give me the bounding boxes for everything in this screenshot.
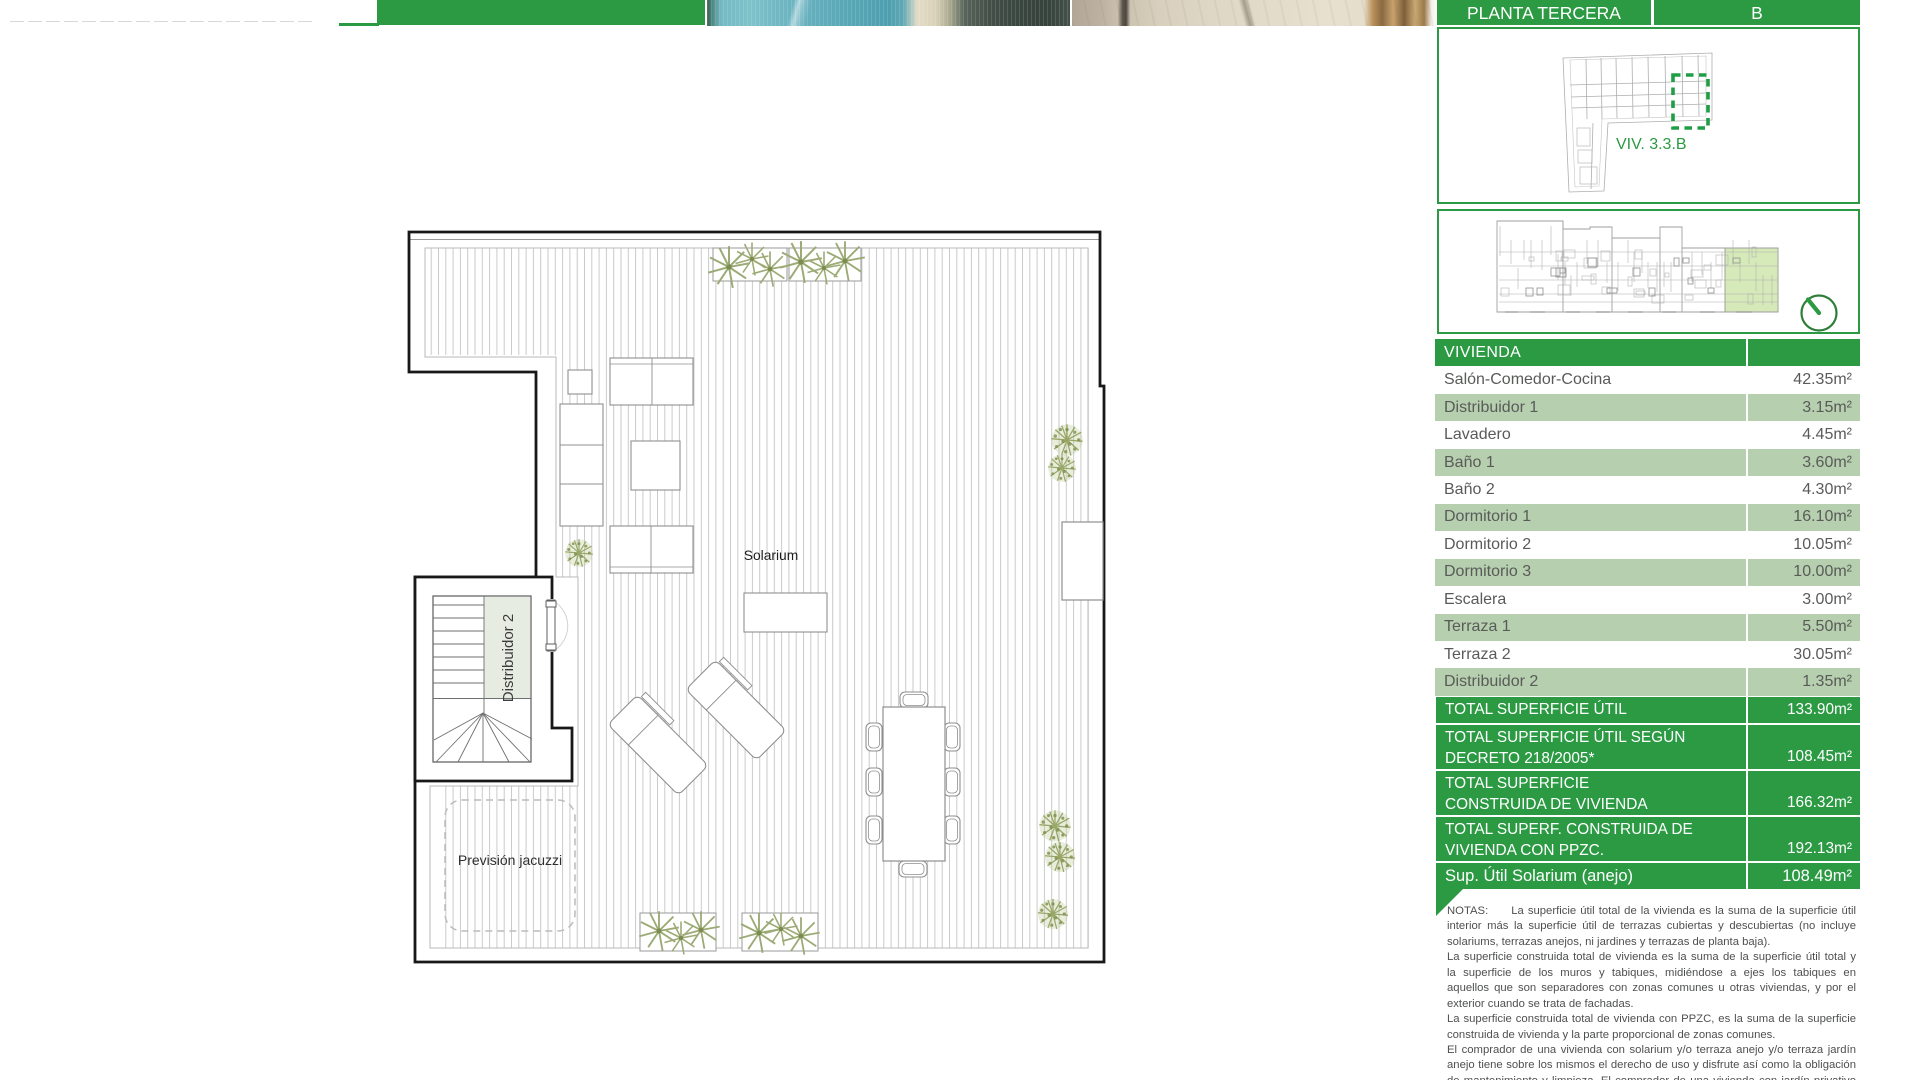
svg-text:Previsión jacuzzi: Previsión jacuzzi bbox=[458, 852, 562, 868]
svg-text:Solarium: Solarium bbox=[744, 548, 798, 563]
svg-text:Distribuidor 2: Distribuidor 2 bbox=[500, 614, 517, 702]
